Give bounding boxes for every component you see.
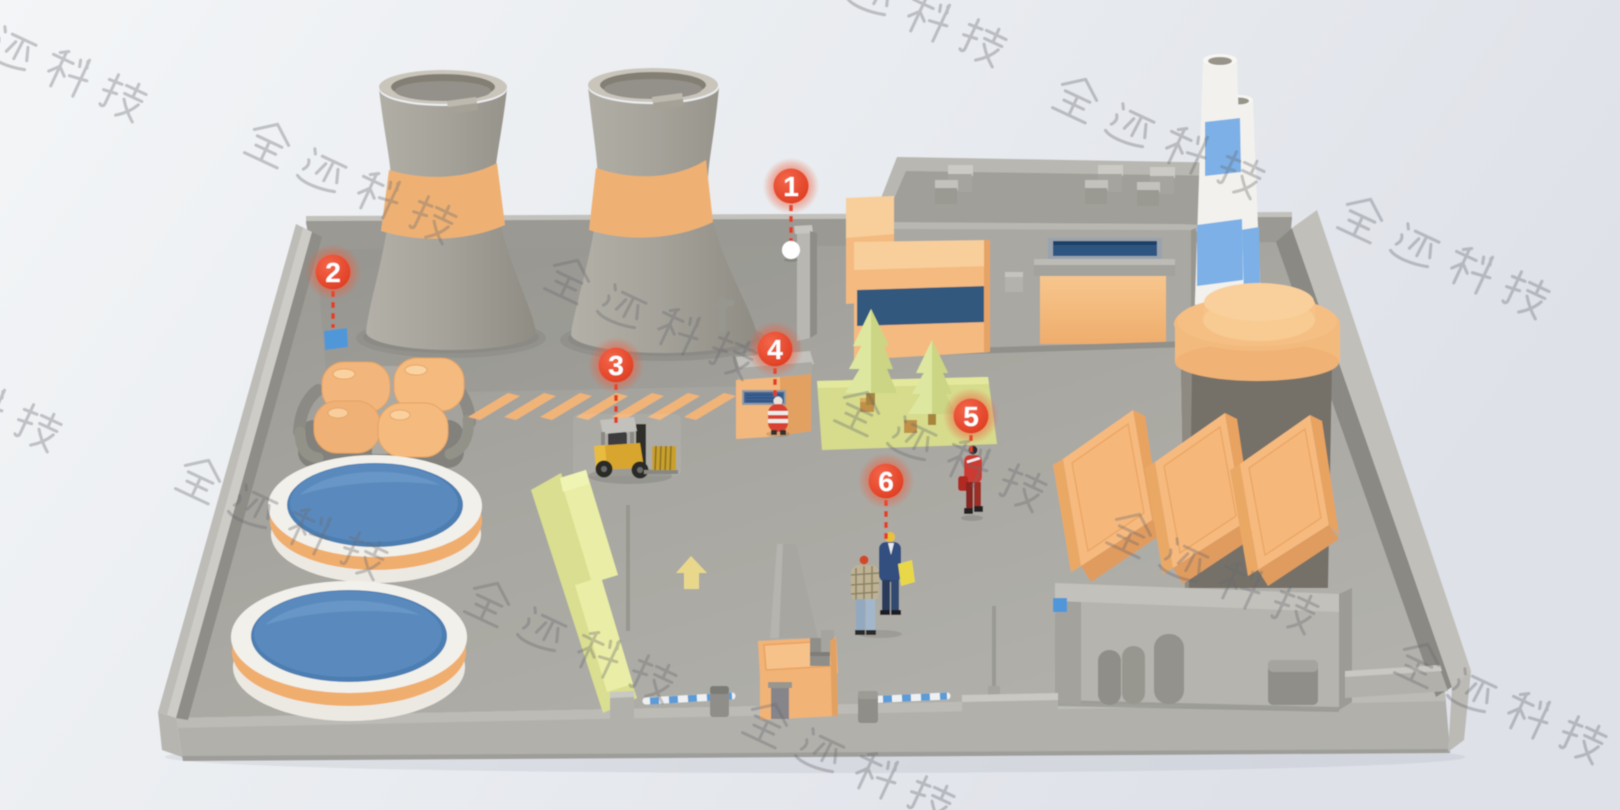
svg-text:2: 2 xyxy=(325,257,341,288)
svg-text:3: 3 xyxy=(608,350,624,381)
svg-text:4: 4 xyxy=(767,334,783,365)
svg-text:5: 5 xyxy=(963,401,979,432)
svg-text:1: 1 xyxy=(783,171,799,202)
svg-text:6: 6 xyxy=(878,466,894,497)
